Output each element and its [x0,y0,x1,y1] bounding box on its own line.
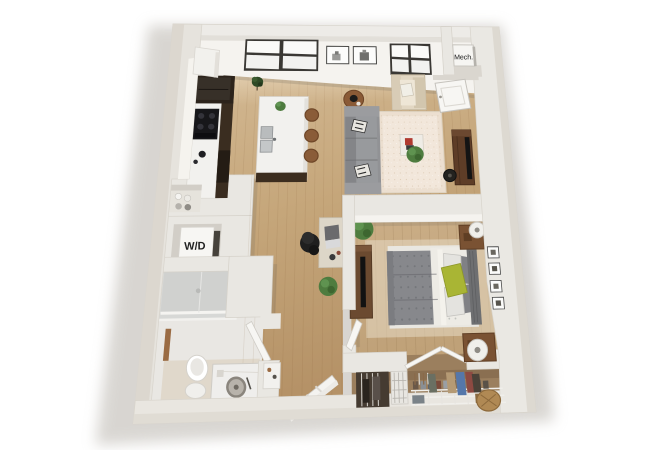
svg-text:Mech.: Mech. [454,54,473,61]
svg-text:W/D: W/D [184,240,206,252]
